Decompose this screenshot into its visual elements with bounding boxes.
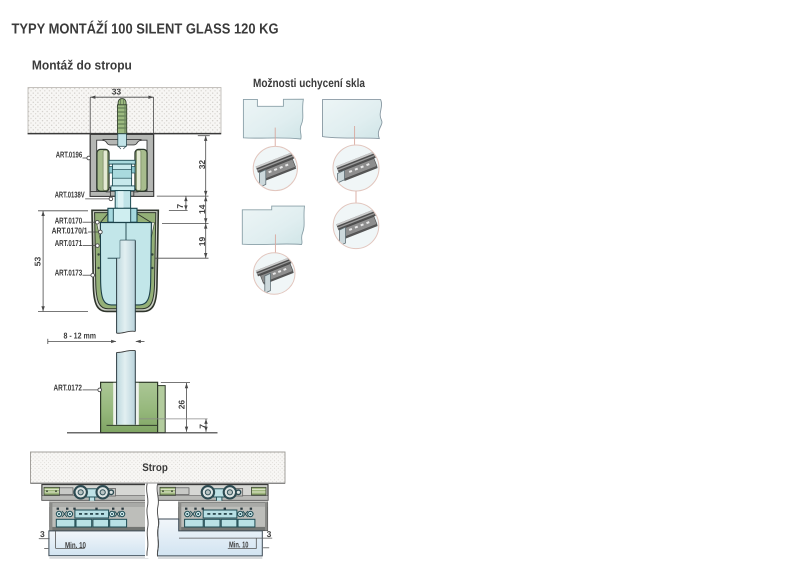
svg-text:ART.0173: ART.0173	[55, 267, 83, 277]
svg-text:33: 33	[112, 87, 122, 97]
svg-text:32: 32	[197, 160, 207, 170]
svg-text:ART.0138V: ART.0138V	[55, 189, 85, 199]
svg-text:53: 53	[33, 256, 43, 266]
svg-text:3: 3	[40, 529, 45, 539]
svg-text:ART.0170: ART.0170	[55, 215, 83, 225]
svg-text:Min. 10: Min. 10	[229, 539, 249, 549]
svg-text:7: 7	[198, 424, 208, 429]
svg-text:8 - 12 mm: 8 - 12 mm	[64, 330, 97, 340]
svg-text:Možnosti uchycení skla: Možnosti uchycení skla	[253, 76, 365, 90]
svg-text:19: 19	[197, 236, 207, 246]
svg-text:ART.0171: ART.0171	[55, 238, 83, 248]
svg-text:14: 14	[197, 204, 207, 214]
svg-text:Montáž do stropu: Montáž do stropu	[32, 58, 132, 73]
svg-text:Min. 10: Min. 10	[65, 540, 86, 550]
svg-text:26: 26	[176, 400, 186, 410]
svg-text:7: 7	[175, 204, 185, 209]
svg-text:ART.0170/1: ART.0170/1	[52, 226, 88, 236]
svg-text:ART.0196: ART.0196	[56, 149, 83, 159]
svg-text:ART.0172: ART.0172	[54, 383, 83, 393]
svg-text:TYPY MONTÁŽÍ 100 SILENT GLASS: TYPY MONTÁŽÍ 100 SILENT GLASS 120 KG	[12, 21, 279, 38]
svg-text:3: 3	[267, 529, 272, 539]
svg-text:Strop: Strop	[142, 462, 168, 474]
